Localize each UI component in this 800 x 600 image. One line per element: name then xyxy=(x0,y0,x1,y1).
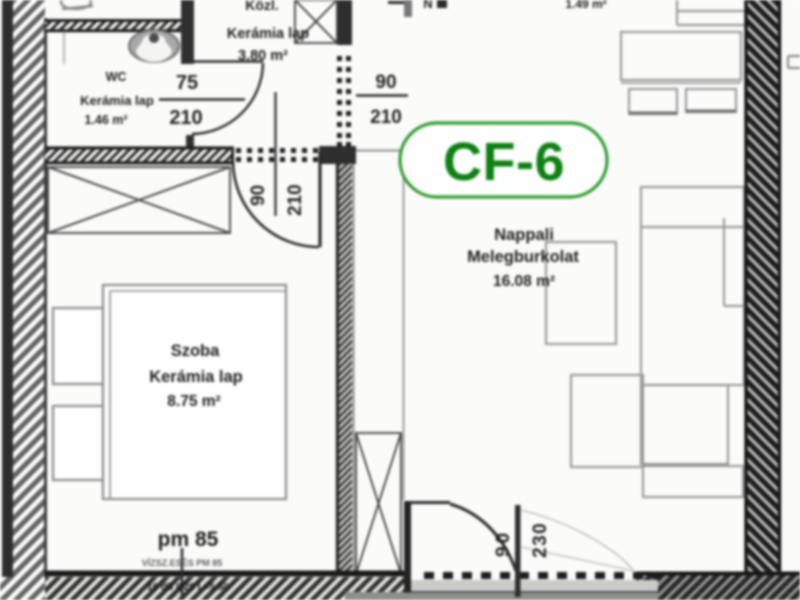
svg-text:Kerámia lap: Kerámia lap xyxy=(80,93,154,108)
svg-text:90: 90 xyxy=(493,530,514,557)
svg-text:8.75 m²: 8.75 m² xyxy=(167,393,220,410)
svg-text:Szoba: Szoba xyxy=(171,342,220,360)
svg-text:WC: WC xyxy=(106,70,127,84)
svg-text:VÍZSZ.ESÉS PM 85: VÍZSZ.ESÉS PM 85 xyxy=(142,558,223,568)
svg-text:N: N xyxy=(423,0,432,11)
svg-text:90: 90 xyxy=(375,72,396,93)
svg-text:16.08 m²: 16.08 m² xyxy=(493,273,555,290)
svg-text:CF-6: CF-6 xyxy=(443,132,565,192)
svg-text:210: 210 xyxy=(169,107,202,129)
svg-text:210: 210 xyxy=(285,184,306,216)
svg-text:210: 210 xyxy=(370,107,402,128)
svg-text:10 db Ø25 L=5.50: 10 db Ø25 L=5.50 xyxy=(147,582,229,593)
svg-text:Kerámia lap: Kerámia lap xyxy=(149,368,243,386)
svg-text:75: 75 xyxy=(176,72,198,94)
svg-text:Közl.: Közl. xyxy=(245,0,278,13)
svg-text:Kerámia lap: Kerámia lap xyxy=(227,26,309,42)
svg-text:pm 85: pm 85 xyxy=(158,528,219,551)
svg-text:90: 90 xyxy=(248,185,269,206)
svg-text:Melegburkolat: Melegburkolat xyxy=(467,248,579,266)
svg-text:1.46 m²: 1.46 m² xyxy=(84,113,127,127)
svg-text:3.80 m²: 3.80 m² xyxy=(238,48,288,64)
svg-text:Nappali: Nappali xyxy=(494,226,554,244)
svg-text:1.49 m²: 1.49 m² xyxy=(565,0,606,11)
svg-text:230: 230 xyxy=(530,522,551,558)
